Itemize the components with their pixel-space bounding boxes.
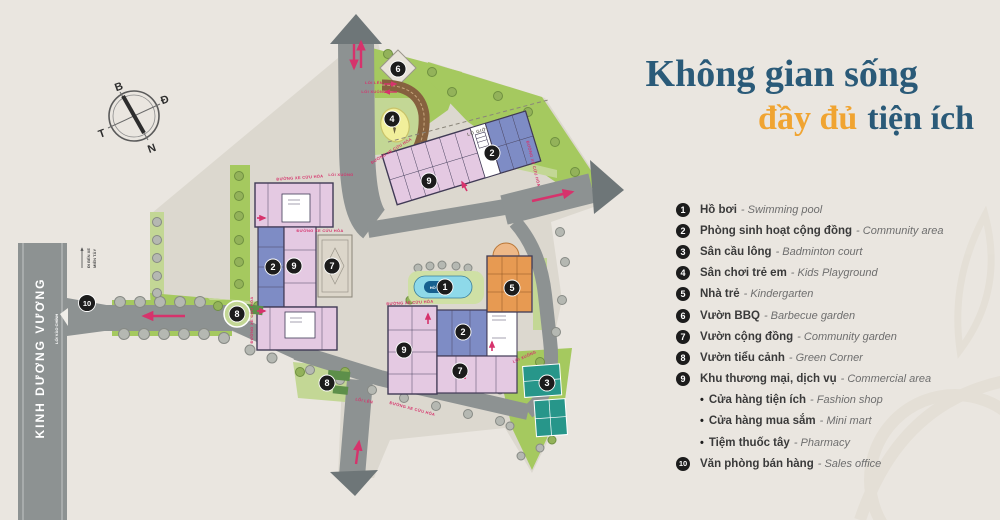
legend-item-9: 9Khu thương mại, dịch vụ- Commercial are… — [676, 369, 996, 390]
svg-text:2: 2 — [489, 148, 494, 158]
legend-item-7: 7Vườn cộng đồng- Community garden — [676, 326, 996, 347]
svg-text:9: 9 — [426, 176, 431, 186]
svg-text:LỐI XUỐNG: LỐI XUỐNG — [328, 172, 353, 177]
marker-2b: 2 — [265, 259, 281, 275]
legend-item-10: 10Văn phòng bán hàng- Sales office — [676, 453, 996, 474]
svg-text:LỐI XUỐNG: LỐI XUỐNG — [361, 89, 386, 94]
svg-text:N: N — [146, 142, 158, 156]
legend-badge-1: 1 — [676, 203, 690, 217]
marker-10: 10 — [79, 295, 96, 312]
svg-text:7: 7 — [457, 366, 462, 376]
legend-item-8: 8Vườn tiểu cảnh- Green Corner — [676, 347, 996, 368]
legend: 1Hồ bơi- Swimming pool 2Phòng sinh hoạt … — [676, 199, 996, 474]
kinh-duong-vuong-road: KINH DƯƠNG VƯƠNG LỐI VÀO CHÍNH — [18, 243, 112, 520]
svg-text:5: 5 — [509, 283, 514, 293]
marker-9a: 9 — [421, 173, 437, 189]
svg-text:ĐI BẾN XE: ĐI BẾN XE — [86, 248, 91, 268]
legend-badge-5: 5 — [676, 287, 690, 301]
marker-7b: 7 — [452, 363, 468, 379]
svg-text:8: 8 — [324, 378, 329, 388]
legend-badge-10: 10 — [676, 457, 690, 471]
bullet-icon: • — [700, 437, 704, 449]
svg-text:MIỀN TÂY: MIỀN TÂY — [92, 249, 97, 268]
svg-text:8: 8 — [234, 309, 239, 319]
marker-1: 1 — [437, 279, 453, 295]
legend-badge-6: 6 — [676, 309, 690, 323]
svg-text:3: 3 — [544, 378, 549, 388]
legend-badge-8: 8 — [676, 351, 690, 365]
legend-subitem-minimart: •Cửa hàng mua sắm- Mini mart — [676, 411, 996, 432]
svg-text:10: 10 — [83, 299, 91, 308]
marker-2a: 2 — [484, 145, 500, 161]
marker-7a: 7 — [324, 258, 340, 274]
legend-badge-4: 4 — [676, 266, 690, 280]
legend-badge-9: 9 — [676, 372, 690, 386]
legend-subitem-fashion: •Cửa hàng tiện ích- Fashion shop — [676, 390, 996, 411]
street-name-label: KINH DƯƠNG VƯƠNG — [33, 277, 47, 438]
svg-text:1: 1 — [442, 282, 447, 292]
marker-8a: 8 — [229, 306, 245, 322]
legend-item-6: 6Vườn BBQ- Barbecue garden — [676, 305, 996, 326]
legend-item-2: 2Phòng sinh hoạt cộng đồng- Community ar… — [676, 220, 996, 241]
svg-text:6: 6 — [395, 64, 400, 74]
svg-text:LỐI LÊN: LỐI LÊN — [365, 80, 383, 85]
svg-text:ĐƯỜNG XE CỨU HỎA: ĐƯỜNG XE CỨU HỎA — [296, 228, 343, 233]
page-title-line1: Không gian sống — [646, 52, 918, 96]
marker-3: 3 — [539, 375, 555, 391]
marker-4: 4 — [384, 111, 400, 127]
compass-icon: B Đ N T — [97, 80, 171, 156]
legend-item-1: 1Hồ bơi- Swimming pool — [676, 199, 996, 220]
entrance-label: LỐI VÀO CHÍNH — [54, 314, 59, 344]
legend-badge-3: 3 — [676, 245, 690, 259]
marker-9c: 9 — [396, 342, 412, 358]
legend-item-5: 5Nhà trẻ- Kindergarten — [676, 284, 996, 305]
direction-note: ĐI BẾN XE MIỀN TÂY — [82, 248, 97, 268]
title-accent: đầy đủ — [758, 100, 857, 137]
title-rest: tiện ích — [867, 100, 974, 137]
svg-text:9: 9 — [401, 345, 406, 355]
svg-text:7: 7 — [329, 261, 334, 271]
svg-text:Đ: Đ — [159, 93, 171, 107]
page-title-line2: đầy đủtiện ích — [758, 100, 974, 138]
site-plan-page: HỒ BƠI KINH DƯƠNG VƯƠNG LỐI VÀO CHÍNH ĐI… — [0, 0, 1000, 520]
bullet-icon: • — [700, 415, 704, 427]
svg-text:4: 4 — [389, 114, 394, 124]
svg-text:T: T — [97, 127, 108, 141]
svg-text:2: 2 — [270, 262, 275, 272]
svg-text:9: 9 — [291, 261, 296, 271]
legend-item-4: 4Sân chơi trẻ em- Kids Playground — [676, 263, 996, 284]
marker-5: 5 — [504, 280, 520, 296]
marker-6: 6 — [390, 61, 406, 77]
svg-text:ĐƯỜNG XE CỨU HỎA: ĐƯỜNG XE CỨU HỎA — [249, 296, 254, 343]
legend-badge-2: 2 — [676, 224, 690, 238]
legend-badge-7: 7 — [676, 330, 690, 344]
marker-9b: 9 — [286, 258, 302, 274]
legend-item-3: 3Sân cầu lông- Badminton court — [676, 241, 996, 262]
marker-2c: 2 — [455, 324, 471, 340]
svg-text:2: 2 — [460, 327, 465, 337]
marker-8b: 8 — [319, 375, 335, 391]
svg-text:B: B — [113, 80, 125, 94]
bullet-icon: • — [700, 394, 704, 406]
legend-subitem-pharmacy: •Tiệm thuốc tây- Pharmacy — [676, 432, 996, 453]
